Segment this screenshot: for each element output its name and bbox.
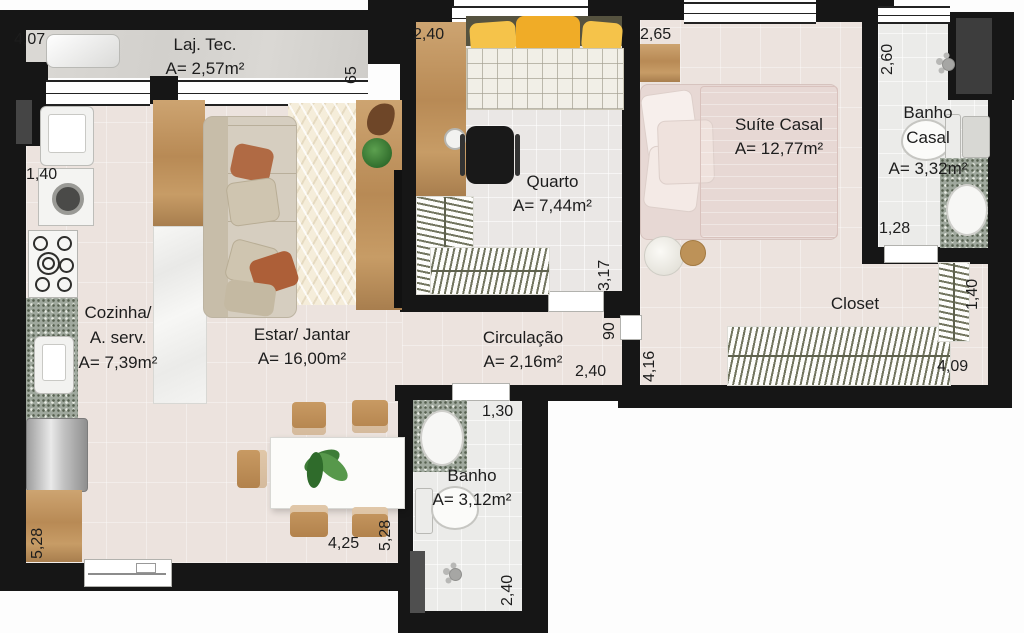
room-label-quarto: Quarto A= 7,44m² [480,170,625,218]
wall-suite-banho-casal [862,16,878,250]
burner [37,252,60,275]
dim-banho-casal-width: 1,28 [879,219,910,239]
condenser-unit [46,34,120,68]
dim-living-depth-right: 5,28 [376,497,396,551]
burner [33,236,48,251]
sink-banho [420,410,464,466]
dim-suite-depth: 4,16 [640,334,660,382]
room-name: Quarto [480,170,625,194]
door-banho [452,383,510,401]
sink-banho-casal [946,184,988,236]
room-label-closet: Closet [808,292,902,316]
plant-sideboard [362,138,392,168]
room-label-suite: Suíte Casal A= 12,77m² [700,113,858,161]
dim-closet-width: 4,09 [937,357,968,377]
wall-shaft-left [16,100,32,144]
wall-living-quarto [400,16,416,312]
dim-circ-door: 90 [600,310,620,340]
island-counter-wood [153,100,205,226]
wall-right [988,100,1012,398]
room-name: Banho [878,100,978,125]
dim-living-width: 4,25 [328,534,359,554]
door-banho-casal [884,245,938,263]
room-name: Cozinha/ [60,300,176,325]
window-laj-left [46,80,150,106]
stove [28,230,78,298]
dining-chair [290,505,328,537]
dim-circ-width: 2,40 [575,362,606,382]
dim-banho-casal-depth: 2,60 [878,27,898,75]
door-suite [620,315,642,340]
room-area: A= 2,57m² [120,57,290,81]
rug [288,103,360,305]
room-label-laj-tec: Laj. Tec. A= 2,57m² [120,33,290,81]
shower-partition [410,551,425,613]
dim-banho-depth: 2,40 [498,554,518,606]
door-quarto [548,291,604,312]
wall-quarto-suite [622,16,640,315]
wall-quarto-bottom [400,293,548,312]
quarto-closet-rack-horizontal [430,247,550,295]
room-name: Suíte Casal [700,113,858,137]
single-bed-mattress [466,48,624,110]
floor-plan: Laj. Tec. A= 2,57m² Quarto A= 7,44m² Suí… [0,0,1024,633]
shower-head-icon [435,560,469,588]
room-label-cozinha: Cozinha/ A. serv. A= 7,39m² [60,300,176,375]
room-area: A= 3,12m² [416,488,528,512]
dining-chair [352,400,388,433]
laundry-sink [40,106,94,166]
dim-quarto-depth: 3,17 [595,245,615,291]
stool [680,240,706,266]
dim-living-depth-left: 5,28 [28,505,48,559]
sofa-pillow [225,177,281,228]
room-label-banho-casal: Banho Casal A= 3,32m² [878,100,978,181]
room-name: Laj. Tec. [120,33,290,57]
room-name: A. serv. [60,325,176,350]
room-area: A= 12,77m² [700,137,858,161]
burner [35,277,50,292]
wall-banho-bottom [398,611,548,633]
table-plant-leaf [305,451,324,488]
room-label-banho: Banho A= 3,12m² [416,464,528,512]
nightstand [640,44,680,82]
wall-top [0,10,376,30]
window-banho-casal [878,6,950,24]
bed-blanket [700,86,838,238]
dining-chair [292,402,326,435]
dim-laj-depth: 65 [342,42,362,84]
room-name: Estar/ Jantar [222,323,382,347]
dim-kitchen-width: 1,40 [26,165,57,185]
fridge [26,418,88,492]
door-entrance-stop [136,563,156,573]
dim-quarto-width: 2,40 [413,25,444,45]
room-name: Casal [878,125,978,150]
shower-head-icon [928,50,964,78]
wall-quarto-suite-lower [622,340,640,390]
burner [57,277,72,292]
door-entrance [84,559,172,587]
wall-bottom-right [618,385,1012,408]
dim-banho-width: 1,30 [482,402,513,422]
wall-bottom-main [0,563,406,591]
burner [57,236,72,251]
bedside-table [644,236,684,276]
dim-suite-width: 2,65 [640,25,671,45]
closet-rack-horizontal [727,326,951,386]
room-area: A= 7,44m² [480,194,625,218]
sofa-pillow [223,279,277,318]
desk [416,22,466,196]
room-name: Banho [416,464,528,488]
dim-closet-rack: 1,40 [963,260,983,310]
door-entrance-leaf [88,573,166,575]
room-area: A= 16,00m² [222,347,382,371]
room-label-estar: Estar/ Jantar A= 16,00m² [222,323,382,371]
tv-panel [394,170,402,308]
room-name: Closet [808,292,902,316]
dim-laj-width: 4,07 [14,30,45,50]
room-area: A= 3,32m² [878,156,978,181]
room-name: Circulação [443,326,603,350]
window-suite [684,2,816,24]
burner [59,258,74,273]
room-area: A= 7,39m² [60,350,176,375]
dining-chair [237,450,267,488]
